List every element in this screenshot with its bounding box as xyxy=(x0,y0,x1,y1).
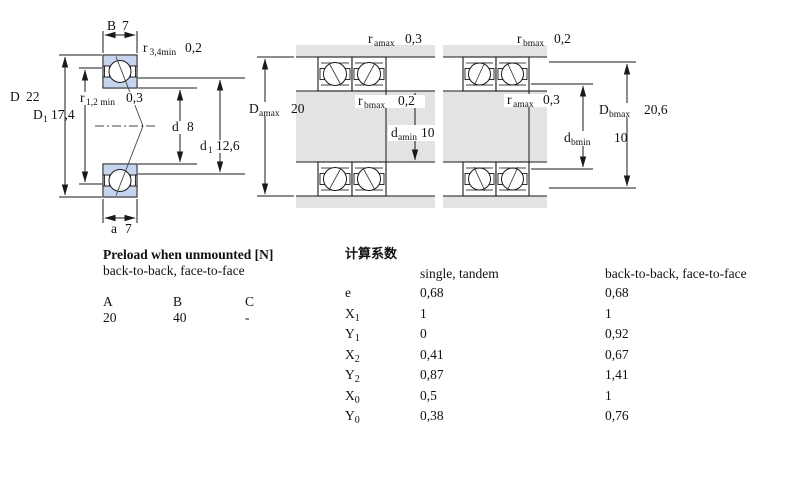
bearing-pair-bottom xyxy=(463,162,529,196)
factors-table: 计算系数 single, tandemback-to-back, face-to… xyxy=(345,247,747,429)
dim-label-Damax: D amax 20 xyxy=(246,101,305,119)
svg-text:0,2: 0,2 xyxy=(398,93,415,108)
preload-title: Preload when unmounted [N] xyxy=(103,247,273,263)
ball-icon xyxy=(109,170,131,192)
factor-row: X111 xyxy=(345,306,747,327)
preload-col-a: A xyxy=(103,294,173,310)
svg-text:r: r xyxy=(517,31,522,46)
dim-label-d: d 8 xyxy=(169,119,195,134)
svg-text:B: B xyxy=(107,18,116,33)
svg-text:r: r xyxy=(368,31,373,46)
svg-text:0,3: 0,3 xyxy=(543,92,560,107)
svg-text:r: r xyxy=(80,90,85,105)
svg-text:d: d xyxy=(172,119,179,134)
svg-text:0,3: 0,3 xyxy=(405,31,422,46)
svg-text:D: D xyxy=(249,101,259,116)
dim-label-rbmax: r bmax 0,2 xyxy=(517,31,571,49)
svg-text:10: 10 xyxy=(614,130,628,145)
dim-label-d1: d 1 12,6 xyxy=(197,138,245,156)
factor-row: e0,680,68 xyxy=(345,285,747,306)
dim-label-a: a 7 xyxy=(111,221,132,236)
preload-value-c: - xyxy=(245,310,250,326)
svg-text:bmax: bmax xyxy=(609,110,630,120)
svg-text:3,4min: 3,4min xyxy=(150,48,177,58)
preload-value-a: 20 xyxy=(103,310,173,326)
svg-text:amax: amax xyxy=(374,39,395,49)
dim-label-damin: d amin 10 xyxy=(388,125,443,143)
svg-text:20,6: 20,6 xyxy=(644,102,668,117)
dim-label-r34: r 3,4min 0,2 xyxy=(143,40,202,58)
preload-col-c: C xyxy=(245,294,254,310)
svg-text:amax: amax xyxy=(513,100,534,110)
page: { "diagram": { "left": { "B": {"main":"B… xyxy=(0,0,800,500)
factor-row: Y100,92 xyxy=(345,326,747,347)
svg-text:17,4: 17,4 xyxy=(51,107,75,122)
svg-text:1,2 min: 1,2 min xyxy=(86,98,115,108)
dim-label-r12: r 1,2 min 0,3 xyxy=(77,90,149,108)
svg-text:bmax: bmax xyxy=(364,101,385,111)
svg-text:1: 1 xyxy=(43,115,48,125)
preload-header-row: ABC xyxy=(103,294,273,310)
svg-text:10: 10 xyxy=(421,125,435,140)
svg-text:D: D xyxy=(33,107,43,122)
ball-icon xyxy=(109,61,131,83)
factors-col1-header: single, tandem xyxy=(420,266,605,282)
svg-text:amin: amin xyxy=(398,133,417,143)
single-bearing-section: B 7 r 3,4min 0,2 D 22 D 1 17,4 r 1,2 min… xyxy=(10,18,245,236)
svg-text:12,6: 12,6 xyxy=(216,138,240,153)
bearing-pair-top xyxy=(463,57,529,91)
bearing-pair-arrangement-b: D bmax 20,6 d bmin 10 r bmax 0,2 r amax … xyxy=(443,31,668,208)
preload-value-b: 40 xyxy=(173,310,245,326)
svg-text:22: 22 xyxy=(26,89,40,104)
svg-text:bmin: bmin xyxy=(571,138,591,148)
svg-text:20: 20 xyxy=(291,101,305,116)
factor-row: X20,410,67 xyxy=(345,347,747,368)
dim-label-dbmin: d bmin 10 xyxy=(560,130,628,148)
factors-header-row: single, tandemback-to-back, face-to-face xyxy=(345,266,747,282)
svg-text:d: d xyxy=(564,130,571,145)
preload-col-b: B xyxy=(173,294,245,310)
svg-text:d: d xyxy=(200,138,207,153)
dim-label-D1: D 1 17,4 xyxy=(33,107,75,125)
dim-label-D: D 22 xyxy=(10,89,40,104)
factor-row: X00,51 xyxy=(345,388,747,409)
svg-text:1: 1 xyxy=(208,146,213,156)
factor-row: Y20,871,41 xyxy=(345,367,747,388)
bearing-pair-arrangement-a: D amax 20 d amin 10 r amax 0,3 r bmax 0,… xyxy=(246,31,443,208)
svg-text:7: 7 xyxy=(125,221,132,236)
bearing-cross-section-bottom xyxy=(103,164,137,197)
svg-text:d: d xyxy=(391,125,398,140)
preload-table: Preload when unmounted [N] back-to-back,… xyxy=(103,247,273,325)
bearing-cross-section-top xyxy=(103,55,137,88)
dim-label-Dbmax: D bmax 20,6 xyxy=(596,102,668,120)
svg-text:a: a xyxy=(111,221,117,236)
factors-col2-header: back-to-back, face-to-face xyxy=(605,266,747,282)
dim-label-B: B 7 xyxy=(107,18,129,33)
factor-row: Y00,380,76 xyxy=(345,408,747,429)
svg-text:0,2: 0,2 xyxy=(185,40,202,55)
svg-text:0,2: 0,2 xyxy=(554,31,571,46)
svg-text:r: r xyxy=(507,92,512,107)
svg-text:r: r xyxy=(143,40,148,55)
technical-drawing: B 7 r 3,4min 0,2 D 22 D 1 17,4 r 1,2 min… xyxy=(0,0,800,245)
svg-text:amax: amax xyxy=(259,109,280,119)
svg-text:bmax: bmax xyxy=(523,39,544,49)
svg-text:8: 8 xyxy=(187,119,194,134)
svg-text:0,3: 0,3 xyxy=(126,90,143,105)
svg-text:r: r xyxy=(358,93,363,108)
bearing-pair-top xyxy=(318,57,386,91)
svg-text:D: D xyxy=(599,102,609,117)
svg-text:7: 7 xyxy=(122,18,129,33)
factors-title: 计算系数 xyxy=(345,247,747,263)
preload-subtitle: back-to-back, face-to-face xyxy=(103,263,273,279)
preload-value-row: 2040- xyxy=(103,310,273,326)
svg-text:D: D xyxy=(10,89,20,104)
bearing-pair-bottom xyxy=(318,162,386,196)
